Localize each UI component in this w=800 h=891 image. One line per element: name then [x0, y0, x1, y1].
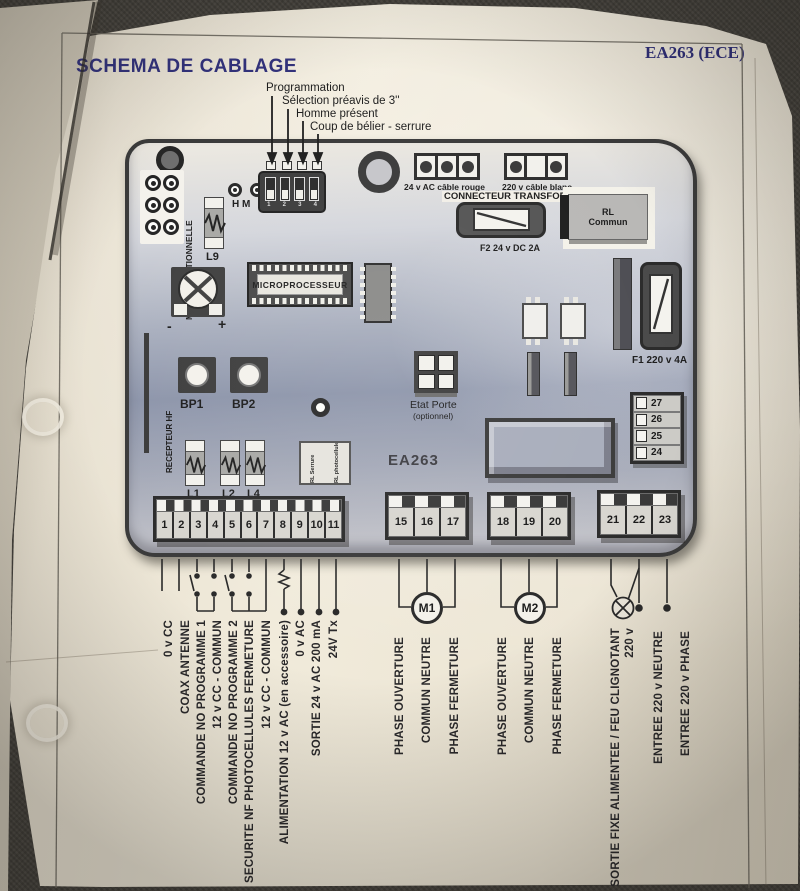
fuse-f2-window	[473, 208, 530, 231]
relay-component	[522, 303, 548, 339]
terminal-7: 7	[256, 512, 273, 538]
module-pin-icon	[163, 175, 179, 191]
dip-pin-icon	[312, 161, 322, 170]
callout-preavis: Sélection préavis de 3''	[282, 95, 400, 107]
wire-label-0vcc: 0 v CC	[163, 620, 177, 657]
connector-24v	[414, 153, 480, 180]
m1-commun-neutre: COMMUN NEUTRE	[421, 637, 435, 743]
terminal-pins-icon	[491, 496, 567, 507]
dip-pin-icon	[266, 161, 276, 170]
callout-homme-present: Homme présent	[296, 108, 378, 120]
motor-m2: M2	[514, 592, 546, 624]
wire-label-220v: 220 v	[624, 628, 638, 658]
resistor-l9	[204, 197, 224, 249]
terminal-pins-icon	[157, 500, 341, 511]
motor-m1: M1	[411, 592, 443, 624]
edge-connector-bar	[144, 333, 149, 453]
wire-label-coax: COAX ANTENNE	[180, 620, 194, 714]
etat-porte-note: (optionnel)	[413, 411, 453, 421]
m2-phase-fermeture: PHASE FERMETURE	[552, 637, 566, 754]
dip-num: 4	[314, 202, 317, 208]
wire-label-0vac: 0 v AC	[295, 620, 309, 657]
wire-label-commun2: 12 v CC - COMMUN	[261, 620, 275, 729]
punch-hole-icon	[26, 402, 60, 432]
dip-switch-2	[280, 177, 291, 201]
terminal-27: 27	[651, 398, 662, 409]
m2-commun-neutre: COMMUN NEUTRE	[524, 637, 538, 743]
m1-phase-ouverture: PHASE OUVERTURE	[394, 637, 408, 755]
microprocessor-chip: MICROPROCESSEUR	[247, 262, 353, 307]
terminal-18: 18	[491, 508, 515, 536]
heatsink-bar	[613, 258, 632, 350]
button-cap-icon	[185, 363, 209, 387]
potentiometer	[171, 267, 225, 317]
pin-icon	[420, 161, 432, 173]
rl-serrure-relay: RL Serrure RL photocellule	[299, 441, 351, 485]
wire-label-entree-neutre: ENTREE 220 v NEUTRE	[653, 631, 667, 764]
motor-m1-label: M1	[419, 601, 436, 615]
terminal-17: 17	[439, 508, 465, 536]
dip-num: 2	[283, 202, 286, 208]
callout-coup-belier: Coup de bélier - serrure	[310, 121, 431, 133]
buzzer-icon	[358, 151, 400, 193]
m1-phase-fermeture: PHASE FERMETURE	[449, 637, 463, 754]
module-pin-icon	[163, 219, 179, 235]
paper-crease	[755, 58, 766, 888]
terminal-strip-aux: 27 26 25 24	[630, 392, 684, 464]
hm-label: H M	[232, 199, 250, 210]
module-pin-icon	[145, 219, 161, 235]
resistor-l1	[185, 440, 205, 486]
capacitor	[527, 352, 540, 396]
dip-switch-1	[265, 177, 276, 201]
fuse-f1-label: F1 220 v 4A	[632, 355, 687, 366]
capacitor	[564, 352, 577, 396]
pin-icon	[550, 161, 562, 173]
terminal-pin-icon	[636, 397, 647, 409]
terminal-strip-power: 21 22 23	[597, 490, 681, 538]
zigzag-icon	[202, 210, 228, 236]
pin-icon	[510, 161, 522, 173]
l9-label: L9	[206, 251, 219, 263]
terminal-pins-icon	[601, 494, 677, 505]
doc-reference: EA263 (ECE)	[645, 43, 745, 63]
rl-serrure-label: RL Serrure	[310, 443, 316, 483]
terminal-strip-main: 1 2 3 4 5 6 7 8 9 10 11	[153, 496, 345, 542]
terminal-22: 22	[625, 506, 651, 534]
chip-pins-icon	[252, 265, 348, 271]
terminal-4: 4	[206, 512, 223, 538]
motor-m2-label: M2	[522, 601, 539, 615]
m2-phase-ouverture: PHASE OUVERTURE	[497, 637, 511, 755]
punch-hole-icon	[30, 708, 64, 738]
wire-label-prog2: COMMANDE NO PROGRAMME 2	[228, 620, 242, 804]
recepteur-hf-label: RECEPTEUR HF	[165, 383, 174, 473]
terminal-3: 3	[189, 512, 206, 538]
terminal-16: 16	[413, 508, 439, 536]
dip-switch-numbers: 1 2 3 4	[261, 202, 323, 208]
wire-label-securite: SECURITE NF PHOTOCELLULES FERMETURE	[244, 620, 258, 883]
pin-icon	[462, 161, 474, 173]
terminal-19: 19	[515, 508, 541, 536]
terminal-8: 8	[273, 512, 290, 538]
transformer-block	[485, 418, 615, 478]
microprocessor-label: MICROPROCESSEUR	[257, 274, 343, 295]
terminal-23: 23	[651, 506, 677, 534]
wire-label-24vtx: 24V Tx	[328, 620, 342, 658]
connector-220v	[504, 153, 568, 180]
callout-programmation: Programmation	[266, 82, 345, 94]
terminal-pin-icon	[636, 447, 647, 459]
led-icon	[311, 398, 330, 417]
rl-commun-line1: RL	[602, 207, 614, 217]
terminal-5: 5	[223, 512, 240, 538]
wire-label-alim12: ALIMENTATION 12 v AC (en accessoire)	[279, 620, 293, 844]
board-ref-label: EA263	[388, 452, 439, 469]
button-cap-icon	[237, 363, 261, 387]
resistor-l2	[220, 440, 240, 486]
resistor-l4	[245, 440, 265, 486]
module-pin-icon	[163, 197, 179, 213]
fuse-f1-window	[649, 274, 673, 334]
terminal-pin-icon	[636, 430, 647, 442]
rl-commun-line2: Commun	[589, 217, 628, 227]
module-pin-icon	[145, 197, 161, 213]
wire-label-sortie24: SORTIE 24 v AC 200 mA	[311, 620, 325, 756]
button-bp2	[230, 357, 268, 393]
terminal-25: 25	[651, 431, 662, 442]
terminal-9: 9	[290, 512, 307, 538]
pot-minus-label: -	[167, 318, 172, 334]
terminal-pins-icon	[389, 496, 465, 507]
wire-label-prog1: COMMANDE NO PROGRAMME 1	[196, 620, 210, 804]
bp1-label: BP1	[180, 397, 203, 411]
fuse-f2-label: F2 24 v DC 2A	[480, 243, 540, 253]
power-wires	[611, 559, 667, 603]
dip-pin-icon	[297, 161, 307, 170]
pot-dial-icon	[171, 267, 225, 317]
printed-page: SCHEMA DE CABLAGE EA263 (ECE) Programmat…	[0, 0, 800, 891]
dip-switch-3	[294, 177, 305, 201]
paper-crease	[6, 650, 158, 662]
dip-num: 1	[267, 202, 270, 208]
button-bp1	[178, 357, 216, 393]
wire-label-entree-phase: ENTREE 220 v PHASE	[680, 631, 694, 756]
etat-porte-label: Etat Porte	[410, 399, 457, 411]
dip-num: 3	[298, 202, 301, 208]
rl-commun-relay: RL Commun	[568, 194, 648, 240]
terminal-26: 26	[651, 414, 662, 425]
relay-component	[560, 303, 586, 339]
terminal-10: 10	[307, 512, 324, 538]
terminal-11: 11	[324, 512, 341, 538]
pot-plus-label: +	[218, 316, 226, 332]
power-dots	[635, 604, 671, 612]
terminal-15: 15	[389, 508, 413, 536]
page-title: SCHEMA DE CABLAGE	[76, 56, 297, 78]
chip-pins-icon	[252, 298, 348, 304]
terminal-pin-icon	[636, 414, 647, 426]
contact-dots	[194, 573, 339, 615]
fold-shadow	[50, 2, 99, 260]
ic-chip	[364, 263, 392, 323]
terminal-strip-m2: 18 19 20	[487, 492, 571, 540]
bp2-label: BP2	[232, 397, 255, 411]
flasher-lamp-icon	[613, 598, 634, 619]
terminal-strip-m1: 15 16 17	[385, 492, 469, 540]
terminal-1: 1	[157, 512, 172, 538]
terminal-21: 21	[601, 506, 625, 534]
wire-label-commun1: 12 v CC - COMMUN	[212, 620, 226, 729]
terminal-20: 20	[541, 508, 567, 536]
dip-switch-4	[309, 177, 320, 201]
left-wires	[162, 559, 336, 611]
module-pin-icon	[145, 175, 161, 191]
etat-porte-connector	[414, 351, 458, 393]
terminal-24: 24	[651, 447, 662, 458]
rl-photocellule-label: RL photocellule	[334, 443, 340, 483]
wire-label-sortie-fixe: SORTIE FIXE ALIMENTEE / FEU CLIGNOTANT	[610, 628, 624, 887]
hm-pin-icon	[228, 183, 242, 197]
terminal-6: 6	[240, 512, 257, 538]
dip-pin-icon	[282, 161, 292, 170]
pin-icon	[441, 161, 453, 173]
terminal-2: 2	[172, 512, 189, 538]
